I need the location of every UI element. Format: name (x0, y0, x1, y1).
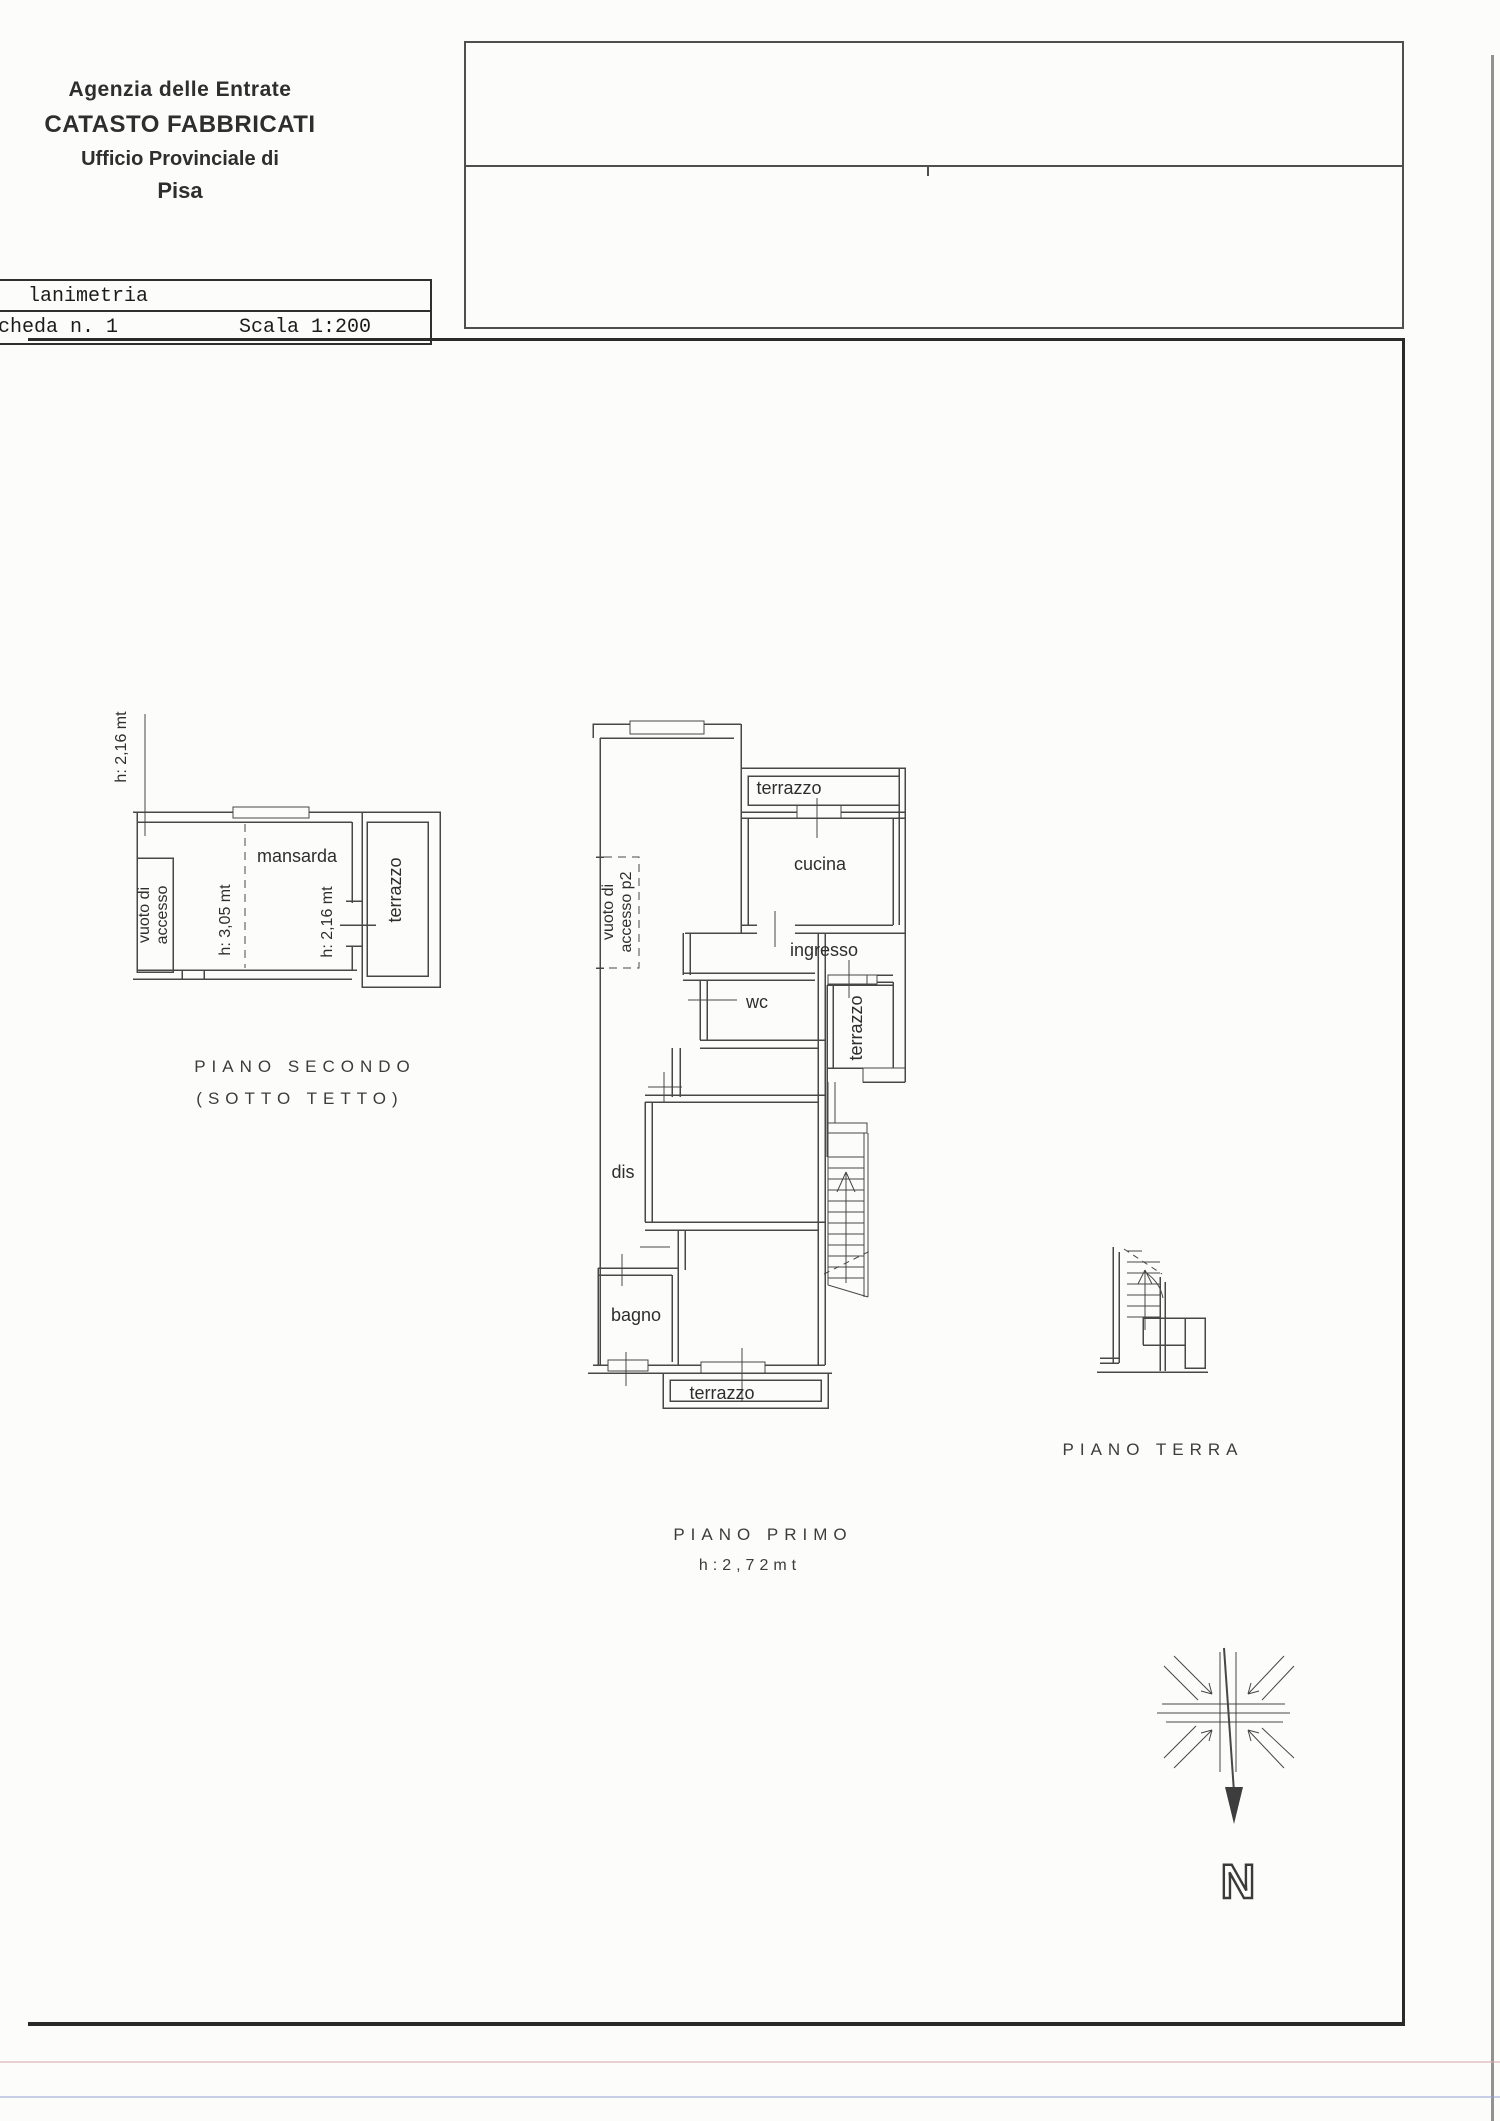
scan-artifact-line (0, 2061, 1500, 2063)
landing-outline (1143, 1318, 1205, 1368)
floor-subtitle-sotto-tetto: (SOTTO TETTO) (196, 1089, 403, 1108)
room-label-vuoto-line1: vuoto di (136, 887, 153, 943)
stair-treads (828, 1082, 868, 1297)
door-jamb (867, 975, 877, 984)
scan-page-edge (1491, 55, 1494, 2121)
stair-bottom-edge (828, 1285, 868, 1297)
landing-step (863, 1068, 905, 1082)
stair-up-arrow (1138, 1270, 1152, 1330)
window (608, 1360, 648, 1371)
room-label-dis: dis (611, 1162, 634, 1182)
north-label: N (1221, 1856, 1256, 1909)
stair-cut-line (824, 1250, 872, 1274)
room-label-terrazzo-bottom: terrazzo (689, 1383, 754, 1403)
height-note-right: h: 2,16 mt (319, 886, 336, 958)
room-label-wc: wc (745, 992, 768, 1012)
door-threshold (828, 1123, 867, 1133)
room-label-vuoto-line2: accesso (154, 886, 171, 945)
room-label-vuoto-p2-line1: vuoto di (600, 884, 617, 940)
compass-main-arrow (1224, 1648, 1234, 1792)
room-label-mansarda: mansarda (257, 846, 338, 866)
room-label-vuoto-p2-line2: accesso p2 (618, 871, 635, 952)
floorplan-drawing: h: 2,16 mt mansarda h: 3,05 mt h: 2,16 m… (0, 0, 1500, 2121)
window (797, 805, 841, 818)
piano-secondo-plan: h: 2,16 mt mansarda h: 3,05 mt h: 2,16 m… (113, 711, 440, 1108)
floor-title-piano-secondo: PIANO SECONDO (194, 1057, 416, 1076)
stair-up-arrow (837, 1172, 855, 1283)
piano-terra-plan: PIANO TERRA (1063, 1247, 1244, 1459)
room-label-terrazzo-right: terrazzo (846, 995, 866, 1060)
stair-treads (1127, 1251, 1160, 1317)
room-label-terrazzo: terrazzo (385, 857, 405, 922)
door-threshold (828, 975, 867, 984)
height-note-left: h: 2,16 mt (113, 711, 130, 783)
wall-lines (1097, 1247, 1208, 1372)
room-label-ingresso: ingresso (790, 940, 858, 960)
floor-title-piano-terra: PIANO TERRA (1063, 1440, 1244, 1459)
cadastral-floorplan-page: Agenzia delle Entrate CATASTO FABBRICATI… (0, 0, 1500, 2121)
scan-artifact-line (0, 2096, 1500, 2098)
north-compass: N (1157, 1648, 1294, 1909)
room-label-cucina: cucina (794, 854, 847, 874)
window (630, 721, 704, 734)
window (701, 1362, 765, 1373)
floor-title-piano-primo: PIANO PRIMO (673, 1525, 852, 1544)
room-label-terrazzo-top: terrazzo (756, 778, 821, 798)
height-note-mid: h: 3,05 mt (217, 884, 234, 956)
room-label-bagno: bagno (611, 1305, 661, 1325)
floor-height-note: h:2,72mt (699, 1557, 801, 1574)
piano-primo-plan: terrazzo cucina ingresso wc terrazzo dis… (588, 721, 905, 1574)
window (233, 807, 309, 818)
compass-arrowhead (1225, 1787, 1243, 1824)
